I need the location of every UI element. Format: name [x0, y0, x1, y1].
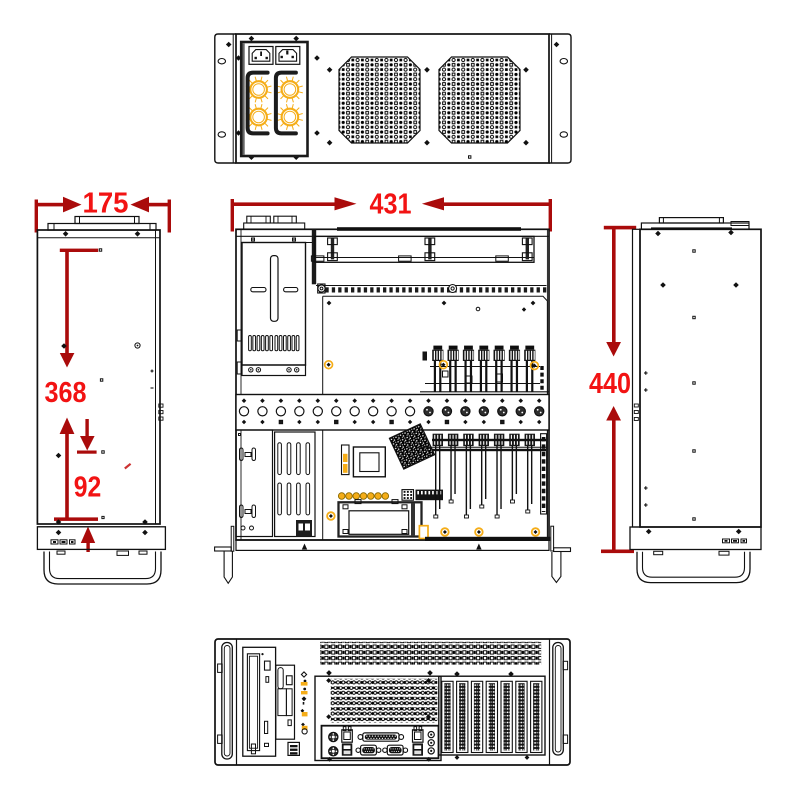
svg-text:92: 92 [74, 472, 102, 504]
svg-text:175: 175 [83, 187, 129, 219]
svg-text:431: 431 [370, 188, 412, 220]
svg-text:440: 440 [589, 368, 631, 400]
svg-text:368: 368 [45, 377, 87, 409]
